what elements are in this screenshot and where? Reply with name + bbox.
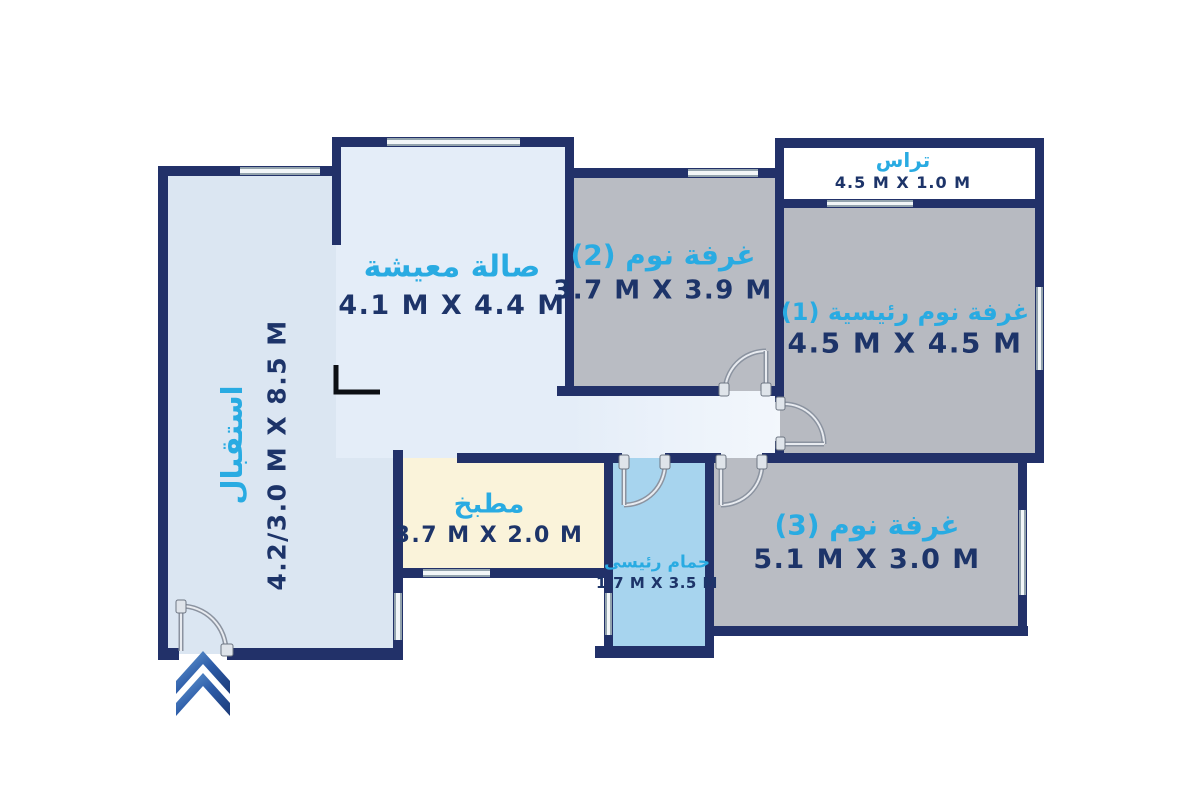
wall	[775, 138, 1044, 148]
label-kitchen-name: مطبخ	[454, 491, 525, 520]
window	[387, 138, 520, 146]
window	[423, 569, 490, 577]
wall	[775, 138, 784, 402]
wall	[457, 453, 622, 463]
label-master-bedroom-dims: 4.5 M X 4.5 M	[787, 329, 1022, 360]
window	[240, 167, 320, 175]
label-bedroom3-dims: 5.1 M X 3.0 M	[753, 545, 980, 575]
label-reception-name: استقبال	[217, 385, 249, 504]
label-living-room-dims: 4.1 M X 4.4 M	[338, 291, 565, 321]
wall	[595, 646, 713, 658]
entrance-arrow-icon	[176, 651, 230, 716]
label-bathroom-name: حمام رئيسى	[604, 554, 710, 573]
label-master-bedroom-name: غرفة نوم رئيسية (1)	[781, 299, 1029, 325]
room-fill-corridor	[570, 391, 782, 458]
wall	[227, 648, 402, 660]
window	[394, 593, 402, 640]
floor-plan: صالة معيشة 4.1 M X 4.4 M غرفة نوم (2) 3.…	[0, 0, 1200, 800]
wall	[712, 626, 1028, 636]
label-bathroom-dims: 1.7 M X 3.5 M	[596, 575, 718, 592]
label-bedroom3-name: غرفة نوم (3)	[774, 511, 959, 542]
label-terrace-name: تراس	[876, 149, 930, 171]
label-living-room-name: صالة معيشة	[364, 251, 541, 284]
window	[827, 200, 913, 207]
wall	[158, 166, 168, 660]
label-bedroom2-name: غرفة نوم (2)	[570, 241, 755, 272]
wall	[557, 386, 722, 396]
label-kitchen-dims: 3.7 M X 2.0 M	[395, 524, 584, 548]
label-terrace-dims: 4.5 M X 1.0 M	[835, 174, 971, 192]
window	[1036, 287, 1043, 370]
window	[688, 169, 758, 177]
window	[1019, 510, 1026, 595]
window	[605, 593, 612, 635]
label-reception-dims: 4.2/3.0 M X 8.5 M	[263, 319, 291, 590]
wall	[762, 453, 1044, 463]
wall	[332, 137, 341, 245]
label-bedroom2-dims: 3.7 M X 3.9 M	[553, 277, 773, 306]
wall	[158, 648, 179, 660]
